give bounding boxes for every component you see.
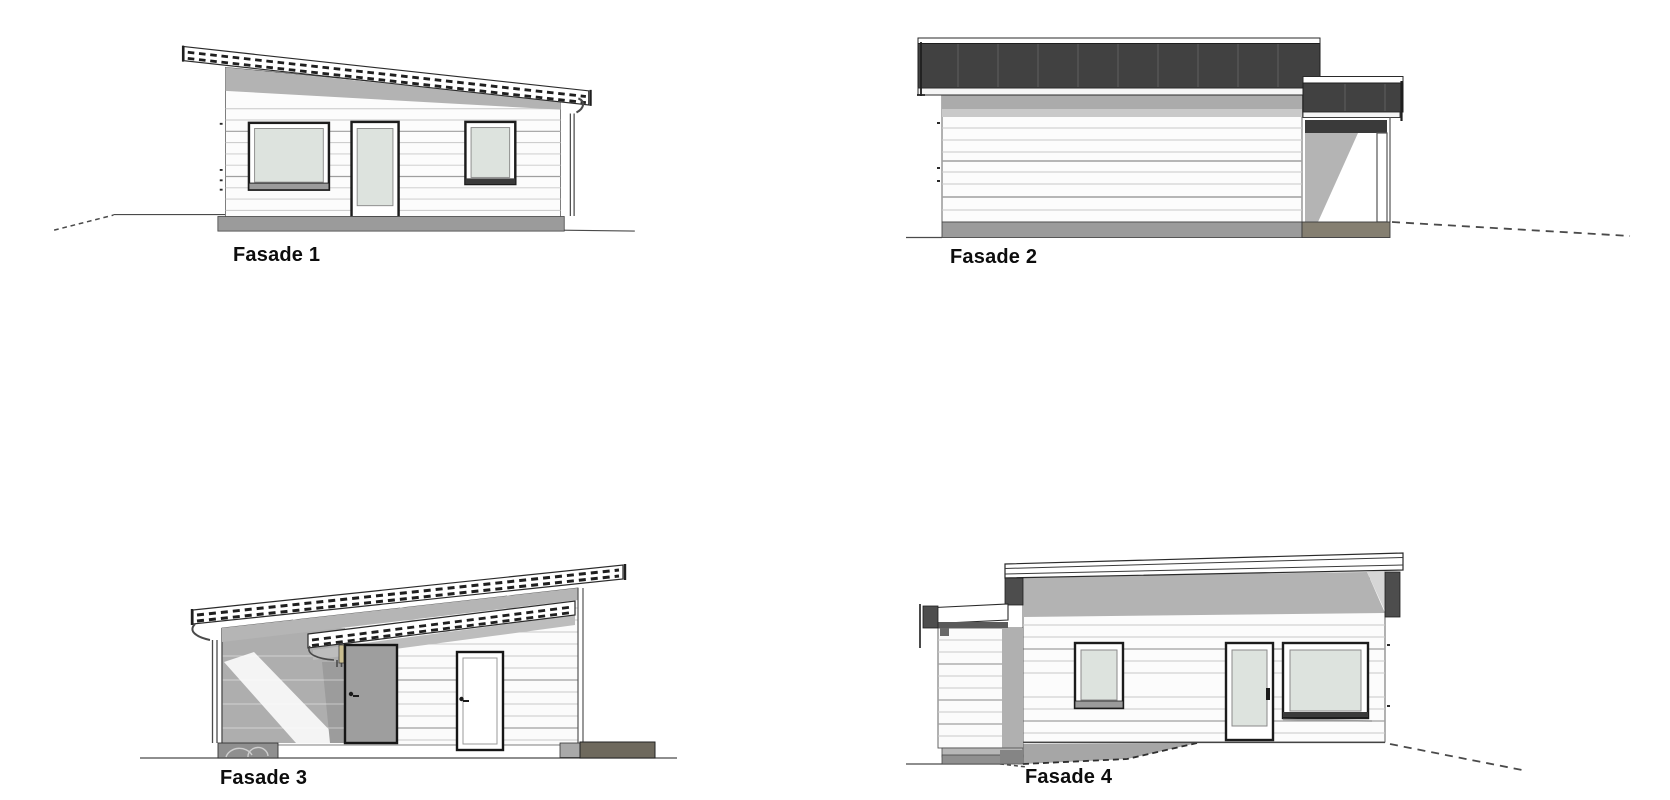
roof-end-right xyxy=(1385,572,1400,617)
fasade-2-svg xyxy=(880,30,1650,245)
downspout xyxy=(570,98,583,216)
wall-edge-ticks xyxy=(220,124,223,190)
fasade-3-drawing xyxy=(130,550,690,765)
door-handle xyxy=(1266,688,1270,700)
door-trim xyxy=(339,645,344,663)
gray-door xyxy=(339,645,397,743)
annex-roof-end xyxy=(923,606,938,628)
carport-annex xyxy=(1303,77,1403,223)
roof-panel xyxy=(917,38,1320,101)
downspout xyxy=(192,624,217,743)
fasade-4-svg xyxy=(880,545,1560,775)
annex xyxy=(920,604,1023,748)
fasade-2-drawing xyxy=(880,30,1650,245)
glazed-door xyxy=(1226,643,1273,740)
elevation-sheet: Fasade 1 xyxy=(0,0,1670,800)
fasade-3-label: Fasade 3 xyxy=(220,767,307,790)
window-small xyxy=(1075,643,1123,708)
fasade-1-svg xyxy=(40,28,680,245)
window-left xyxy=(249,123,329,190)
roof-end-left xyxy=(1005,578,1023,605)
annex-foundation xyxy=(942,748,1023,764)
fasade-1-label: Fasade 1 xyxy=(233,244,320,267)
fasade-1-drawing xyxy=(40,28,680,245)
terrain-wedge xyxy=(1023,743,1197,764)
wall-corner xyxy=(578,588,583,745)
annex-corner-shadow xyxy=(1002,628,1023,748)
fasade-3-svg xyxy=(130,550,690,765)
annex-roof-edge xyxy=(938,622,1008,628)
wall xyxy=(937,95,1302,222)
annex-foundation xyxy=(1302,222,1390,238)
foundation xyxy=(942,222,1302,238)
eave-shadow xyxy=(1023,572,1385,617)
fasade-4-label: Fasade 4 xyxy=(1025,766,1112,789)
white-door xyxy=(457,652,503,750)
entrance-door xyxy=(352,122,399,219)
carport-post xyxy=(1377,133,1387,222)
foundation xyxy=(218,217,564,232)
carport-opening-shadow xyxy=(1305,120,1387,133)
wall-edge-ticks xyxy=(1387,645,1390,706)
wall-edge-ticks xyxy=(937,123,940,181)
fasade-2-label: Fasade 2 xyxy=(950,246,1037,269)
fasade-4-drawing xyxy=(880,545,1560,775)
window-large xyxy=(1283,643,1372,721)
window-right xyxy=(465,122,515,184)
carport-interior-shadow xyxy=(1305,133,1358,222)
